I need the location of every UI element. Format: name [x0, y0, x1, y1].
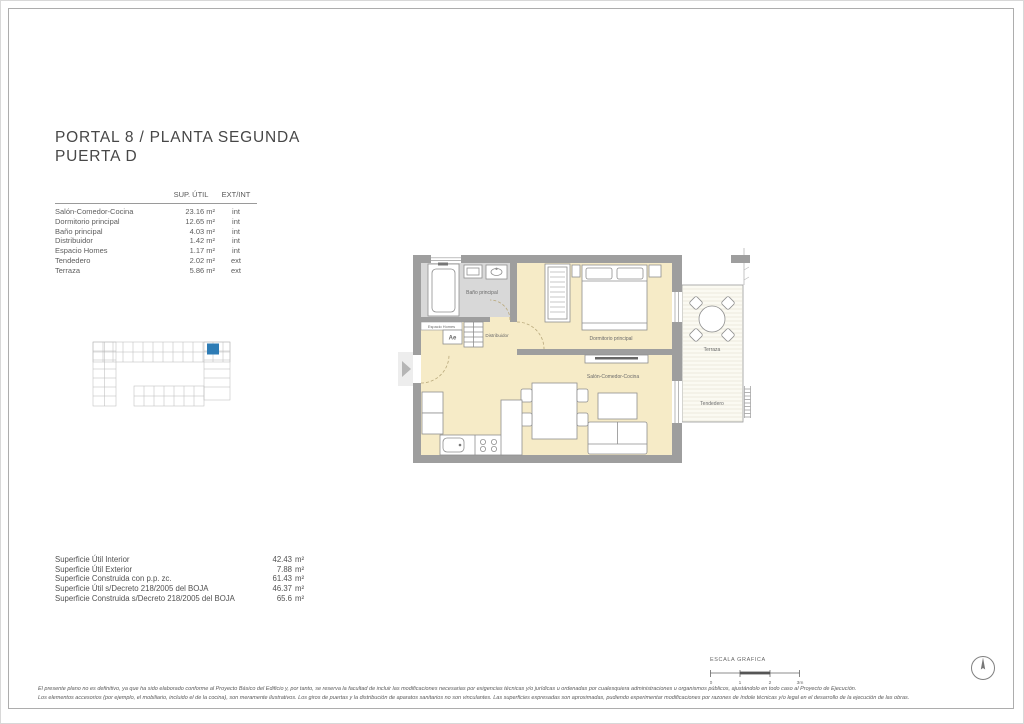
- room-area: 23.16 m²: [167, 207, 215, 217]
- table-row: Salón-Comedor-Cocina 23.16 m² int: [55, 207, 257, 217]
- room-name: Terraza: [55, 266, 167, 276]
- label-bathroom: Baño principal: [466, 290, 498, 296]
- coffee-table: [598, 393, 637, 419]
- hob-burner: [480, 439, 485, 444]
- room-name: Espacio Homes: [55, 246, 167, 256]
- areas-table-body: Salón-Comedor-Cocina 23.16 m² int Dormit…: [55, 204, 257, 276]
- label-hall: Distribuidor: [485, 333, 509, 338]
- summary-unit: m²: [295, 555, 309, 565]
- summary-value: 7.88: [251, 565, 295, 575]
- kitchen-cabinet: [422, 413, 443, 434]
- table-row: Espacio Homes 1.17 m² int: [55, 246, 257, 256]
- pillow: [586, 268, 612, 279]
- summary-label: Superficie Construida s/Decreto 218/2005…: [55, 594, 251, 604]
- table-row: Baño principal 4.03 m² int: [55, 227, 257, 237]
- hob-burner: [480, 446, 485, 451]
- drying-rack: [745, 386, 751, 418]
- floor-plan: Baño principal Espacio Homes Ae Distribu…: [398, 248, 770, 474]
- tv: [595, 357, 638, 360]
- room-type: int: [215, 207, 257, 217]
- disclaimer-line-1: El presente plano no es definitivo, ya q…: [38, 685, 996, 694]
- chair: [521, 389, 532, 402]
- summary-unit: m²: [295, 584, 309, 594]
- label-espacio-homes: Espacio Homes: [428, 324, 455, 329]
- room-area: 4.03 m²: [167, 227, 215, 237]
- summary-label: Superficie Útil s/Decreto 218/2005 del B…: [55, 584, 251, 594]
- hob-burner: [491, 439, 496, 444]
- chair: [577, 389, 588, 402]
- col-sup-util: SUP. ÚTIL: [167, 190, 215, 199]
- summary-label: Superficie Útil Interior: [55, 555, 251, 565]
- room-type: ext: [215, 266, 257, 276]
- disclaimer: El presente plano no es definitivo, ya q…: [38, 685, 996, 702]
- dining-table: [532, 383, 577, 439]
- room-type: ext: [215, 256, 257, 266]
- summary-value: 42.43: [251, 555, 295, 565]
- title-line-1: PORTAL 8 / PLANTA SEGUNDA: [55, 128, 300, 147]
- room-area: 5.86 m²: [167, 266, 215, 276]
- label-terrace: Terraza: [704, 347, 721, 353]
- room-type: int: [215, 227, 257, 237]
- room-name: Baño principal: [55, 227, 167, 237]
- title-line-2: PUERTA D: [55, 147, 300, 166]
- summary-label: Superficie Construida con p.p. zc.: [55, 574, 251, 584]
- room-name: Dormitorio principal: [55, 217, 167, 227]
- highlighted-unit: [207, 344, 219, 355]
- kitchen-cabinet: [422, 392, 443, 413]
- pillow: [617, 268, 643, 279]
- summary-row: Superficie Útil Interior 42.43 m²: [55, 555, 280, 565]
- nightstand: [572, 265, 580, 277]
- areas-table-header: SUP. ÚTIL EXT/INT: [55, 190, 257, 204]
- bathtub-basin: [432, 269, 455, 312]
- table-row: Tendedero 2.02 m² ext: [55, 256, 257, 266]
- chair: [577, 413, 588, 426]
- nightstand: [649, 265, 661, 277]
- summary-unit: m²: [295, 574, 309, 584]
- unit-locator-map: [90, 336, 238, 414]
- disclaimer-line-2: Los elementos accesorios (por ejemplo, e…: [38, 694, 996, 703]
- col-empty: [55, 190, 167, 199]
- page-title: PORTAL 8 / PLANTA SEGUNDA PUERTA D: [55, 128, 300, 166]
- room-type: int: [215, 246, 257, 256]
- label-bedroom: Dormitorio principal: [589, 336, 632, 342]
- room-type: int: [215, 217, 257, 227]
- summary-value: 65.6: [251, 594, 295, 604]
- room-area: 1.17 m²: [167, 246, 215, 256]
- north-compass-icon: [966, 651, 1000, 685]
- summary-row: Superficie Útil Exterior 7.88 m²: [55, 565, 280, 575]
- table-row: Distribuidor 1.42 m² int: [55, 236, 257, 246]
- summary-unit: m²: [295, 594, 309, 604]
- scale-bar-title: ESCALA GRAFICA: [710, 657, 820, 663]
- summary-label: Superficie Útil Exterior: [55, 565, 251, 575]
- room-area: 1.42 m²: [167, 236, 215, 246]
- summary-unit: m²: [295, 565, 309, 575]
- room-name: Distribuidor: [55, 236, 167, 246]
- hob-burner: [491, 446, 496, 451]
- col-ext-int: EXT/INT: [215, 190, 257, 199]
- surface-summary-table: Superficie Útil Interior 42.43 m² Superf…: [55, 555, 280, 604]
- summary-row: Superficie Construida con p.p. zc. 61.43…: [55, 574, 280, 584]
- terrace-table: [699, 306, 725, 332]
- entry-arrow-icon: [398, 352, 413, 386]
- room-type: int: [215, 236, 257, 246]
- kitchen-peninsula: [501, 400, 522, 455]
- label-ae: Ae: [449, 336, 457, 342]
- room-area: 2.02 m²: [167, 256, 215, 266]
- bathtub-faucet: [438, 263, 448, 266]
- room-name: Tendedero: [55, 256, 167, 266]
- table-row: Dormitorio principal 12.65 m² int: [55, 217, 257, 227]
- summary-row: Superficie Construida s/Decreto 218/2005…: [55, 594, 280, 604]
- label-living: Salón-Comedor-Cocina: [587, 374, 639, 380]
- room-area: 12.65 m²: [167, 217, 215, 227]
- chair: [521, 413, 532, 426]
- table-row: Terraza 5.86 m² ext: [55, 266, 257, 276]
- label-drying: Tendedero: [700, 401, 724, 407]
- room-areas-table: SUP. ÚTIL EXT/INT Salón-Comedor-Cocina 2…: [55, 190, 257, 276]
- summary-value: 61.43: [251, 574, 295, 584]
- room-name: Salón-Comedor-Cocina: [55, 207, 167, 217]
- summary-row: Superficie Útil s/Decreto 218/2005 del B…: [55, 584, 280, 594]
- summary-value: 46.37: [251, 584, 295, 594]
